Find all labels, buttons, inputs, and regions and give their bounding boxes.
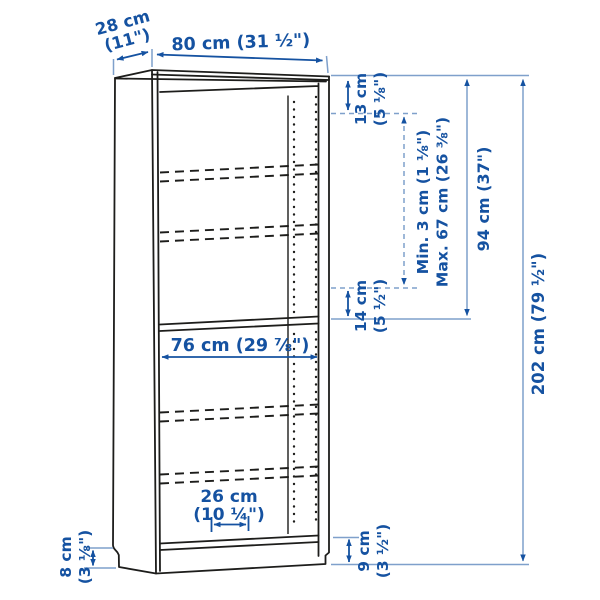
total-height-label: 202 cm (79 ½")	[529, 253, 548, 395]
diagram-canvas: 28 cm (11") 80 cm (31 ½") 13 cm (5 ⅛") M…	[0, 0, 600, 600]
fixed-middle-shelf	[160, 317, 319, 332]
width-right-tick	[327, 56, 329, 73]
front-left-stile	[152, 70, 160, 574]
upper-height-label: 94 cm (37")	[474, 147, 493, 252]
top-offset-label-inch: (5 ⅛")	[371, 72, 389, 126]
width-dimension-label: 80 cm (31 ½")	[171, 31, 310, 56]
depth-dimension-line	[117, 52, 148, 60]
bottom-shelf	[160, 536, 319, 551]
mid-offset-label-cm: 14 cm	[352, 280, 370, 332]
plinth-right-label-inch: (3 ½")	[374, 524, 392, 578]
dimension-diagram: 28 cm (11") 80 cm (31 ½") 13 cm (5 ⅛") M…	[0, 0, 600, 600]
dimension-labels: 28 cm (11") 80 cm (31 ½") 13 cm (5 ⅛") M…	[57, 6, 548, 584]
plinth-right-label-cm: 9 cm	[355, 530, 373, 572]
adjustable-shelf-3	[160, 405, 319, 422]
shelf-range-min-label: Min. 3 cm (1 ⅛")	[414, 130, 432, 274]
bookcase-top-edges	[115, 70, 329, 82]
shelf-depth-label-inch: (10 ¼")	[193, 505, 265, 525]
shelf-depth-label-cm: 26 cm	[200, 487, 257, 507]
adjustable-shelf-2	[160, 225, 319, 242]
plinth-left-label-inch: (3 ⅛")	[76, 530, 94, 584]
mid-offset-label-inch: (5 ½")	[371, 279, 389, 333]
extension-lines	[84, 49, 529, 568]
shelf-range-max-label: Max. 67 cm (26 ⅜")	[434, 117, 452, 287]
adjustable-shelf-1	[160, 165, 319, 182]
width-dimension-line	[157, 55, 323, 61]
plinth-left-label-cm: 8 cm	[57, 536, 75, 578]
inner-width-label: 76 cm (29 ⅞")	[171, 336, 310, 356]
top-offset-label-cm: 13 cm	[352, 73, 370, 125]
